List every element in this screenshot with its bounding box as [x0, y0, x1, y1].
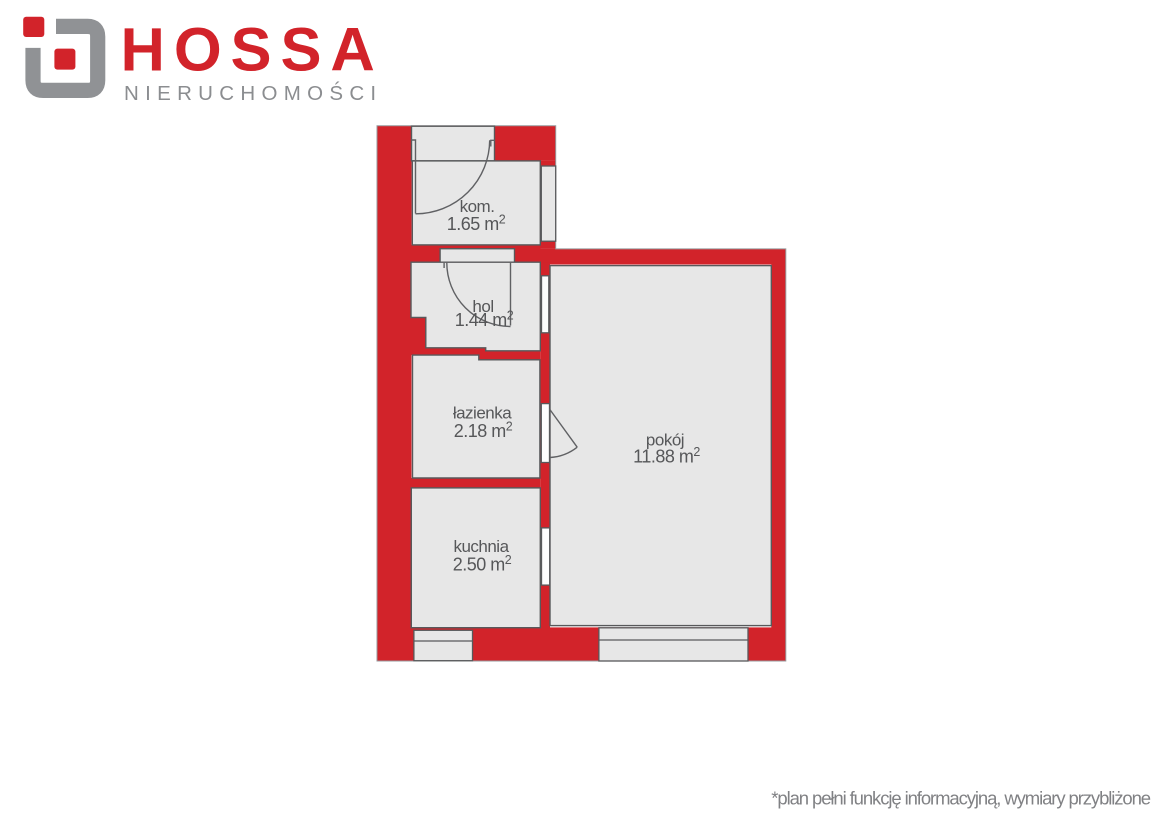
svg-text:1.65 m2: 1.65 m2: [447, 212, 506, 234]
svg-text:2.18 m2: 2.18 m2: [454, 419, 513, 441]
svg-text:2.50 m2: 2.50 m2: [453, 553, 512, 575]
svg-text:kuchnia: kuchnia: [453, 537, 509, 556]
svg-text:11.88 m2: 11.88 m2: [633, 445, 700, 467]
svg-text:łazienka: łazienka: [453, 403, 512, 422]
svg-text:1.44 m2: 1.44 m2: [455, 309, 514, 331]
svg-text:HOSSA: HOSSA: [121, 15, 384, 84]
svg-text:*plan pełni funkcję informacy: *plan pełni funkcję informacyjną, wymiar…: [771, 788, 1151, 809]
svg-text:NIERUCHOMOŚCI: NIERUCHOMOŚCI: [124, 81, 382, 105]
